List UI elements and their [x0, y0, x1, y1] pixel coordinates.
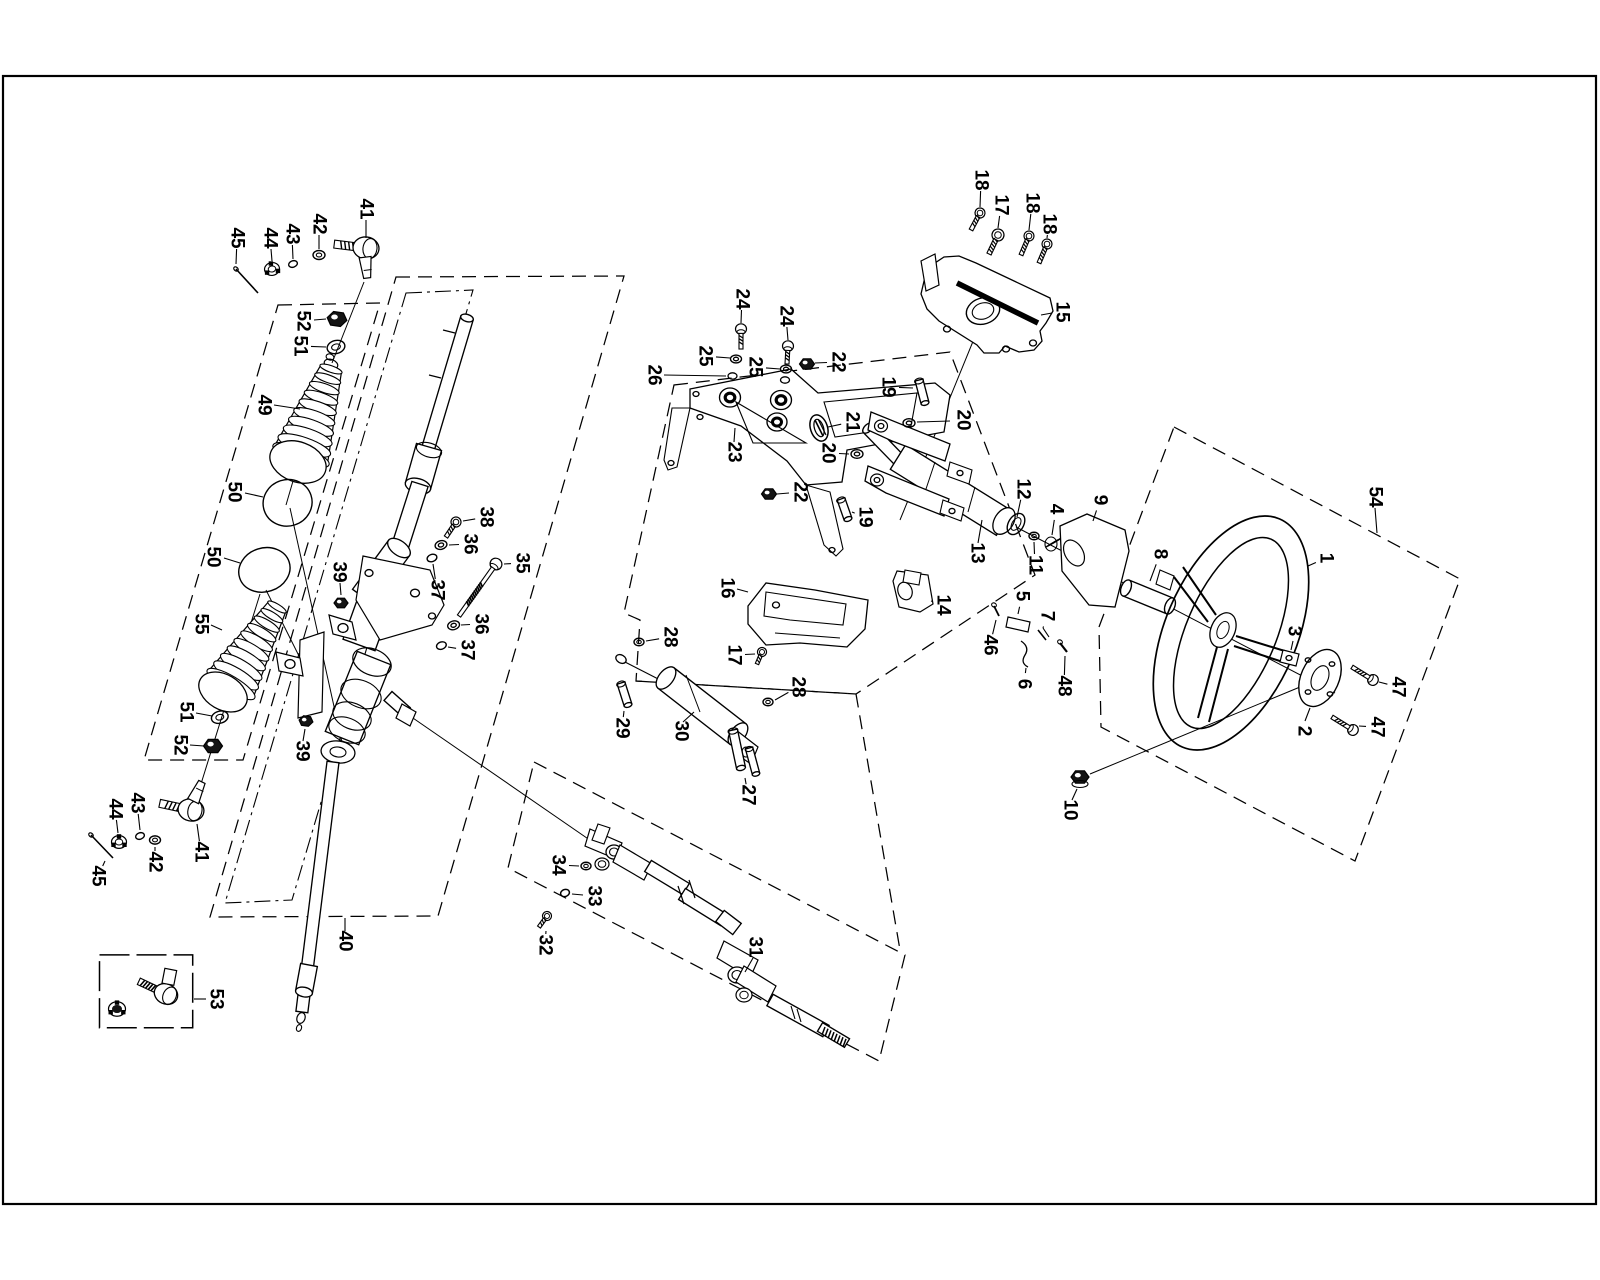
svg-text:48: 48 — [1054, 675, 1075, 696]
svg-text:24: 24 — [732, 288, 753, 310]
svg-text:2: 2 — [1294, 726, 1315, 737]
svg-text:49: 49 — [254, 394, 275, 415]
svg-text:22: 22 — [790, 481, 811, 502]
svg-text:15: 15 — [1052, 301, 1073, 323]
svg-text:7: 7 — [1037, 611, 1058, 622]
svg-text:38: 38 — [476, 506, 497, 527]
svg-text:51: 51 — [290, 335, 311, 357]
svg-text:19: 19 — [855, 506, 876, 527]
svg-text:31: 31 — [745, 936, 766, 958]
svg-text:25: 25 — [695, 345, 716, 367]
svg-text:39: 39 — [329, 561, 350, 582]
svg-text:12: 12 — [1013, 478, 1034, 499]
svg-text:44: 44 — [105, 798, 126, 820]
svg-text:8: 8 — [1150, 549, 1171, 560]
svg-text:50: 50 — [203, 546, 224, 567]
svg-text:6: 6 — [1014, 679, 1035, 690]
svg-text:43: 43 — [282, 223, 303, 244]
svg-text:18: 18 — [1022, 192, 1043, 213]
svg-text:16: 16 — [717, 577, 738, 598]
svg-text:39: 39 — [292, 740, 313, 761]
svg-text:24: 24 — [776, 305, 797, 327]
svg-text:53: 53 — [206, 988, 227, 1009]
svg-text:36: 36 — [471, 613, 492, 634]
svg-text:19: 19 — [878, 376, 899, 397]
svg-text:50: 50 — [224, 481, 245, 502]
svg-text:35: 35 — [512, 552, 533, 574]
svg-text:42: 42 — [309, 213, 330, 234]
svg-text:44: 44 — [260, 227, 281, 249]
svg-text:41: 41 — [356, 198, 377, 220]
svg-text:17: 17 — [724, 644, 745, 665]
svg-text:32: 32 — [535, 934, 556, 955]
svg-text:37: 37 — [427, 579, 448, 600]
svg-text:28: 28 — [788, 676, 809, 697]
svg-text:45: 45 — [227, 227, 248, 249]
svg-text:4: 4 — [1046, 504, 1067, 515]
svg-text:34: 34 — [548, 854, 569, 876]
svg-text:33: 33 — [584, 885, 605, 906]
svg-text:25: 25 — [745, 356, 766, 378]
svg-text:10: 10 — [1060, 799, 1081, 820]
svg-text:9: 9 — [1090, 495, 1111, 506]
svg-text:52: 52 — [293, 310, 314, 331]
svg-text:22: 22 — [828, 351, 849, 372]
svg-text:40: 40 — [335, 930, 356, 951]
svg-text:30: 30 — [671, 720, 692, 741]
svg-text:47: 47 — [1367, 716, 1388, 737]
svg-text:26: 26 — [644, 364, 665, 385]
svg-text:3: 3 — [1284, 626, 1305, 637]
svg-text:52: 52 — [170, 734, 191, 755]
svg-text:11: 11 — [1025, 555, 1046, 576]
svg-text:21: 21 — [842, 411, 863, 433]
svg-text:13: 13 — [967, 542, 988, 563]
svg-text:29: 29 — [612, 717, 633, 738]
svg-text:18: 18 — [1039, 213, 1060, 234]
svg-text:47: 47 — [1388, 676, 1409, 697]
svg-text:28: 28 — [660, 626, 681, 647]
svg-text:43: 43 — [127, 792, 148, 813]
svg-text:46: 46 — [980, 634, 1001, 655]
svg-text:14: 14 — [933, 594, 954, 616]
svg-text:51: 51 — [176, 701, 197, 723]
svg-text:42: 42 — [145, 851, 166, 872]
svg-text:23: 23 — [724, 441, 745, 462]
svg-text:41: 41 — [191, 841, 212, 863]
svg-text:55: 55 — [191, 613, 212, 635]
svg-text:17: 17 — [991, 194, 1012, 215]
svg-text:37: 37 — [457, 639, 478, 660]
svg-text:27: 27 — [738, 784, 759, 805]
svg-text:18: 18 — [971, 169, 992, 190]
svg-text:36: 36 — [460, 533, 481, 554]
svg-text:45: 45 — [88, 865, 109, 887]
svg-text:5: 5 — [1012, 591, 1033, 602]
svg-text:1: 1 — [1316, 553, 1337, 564]
svg-text:20: 20 — [953, 409, 974, 430]
svg-text:54: 54 — [1365, 486, 1386, 508]
svg-text:20: 20 — [818, 442, 839, 463]
